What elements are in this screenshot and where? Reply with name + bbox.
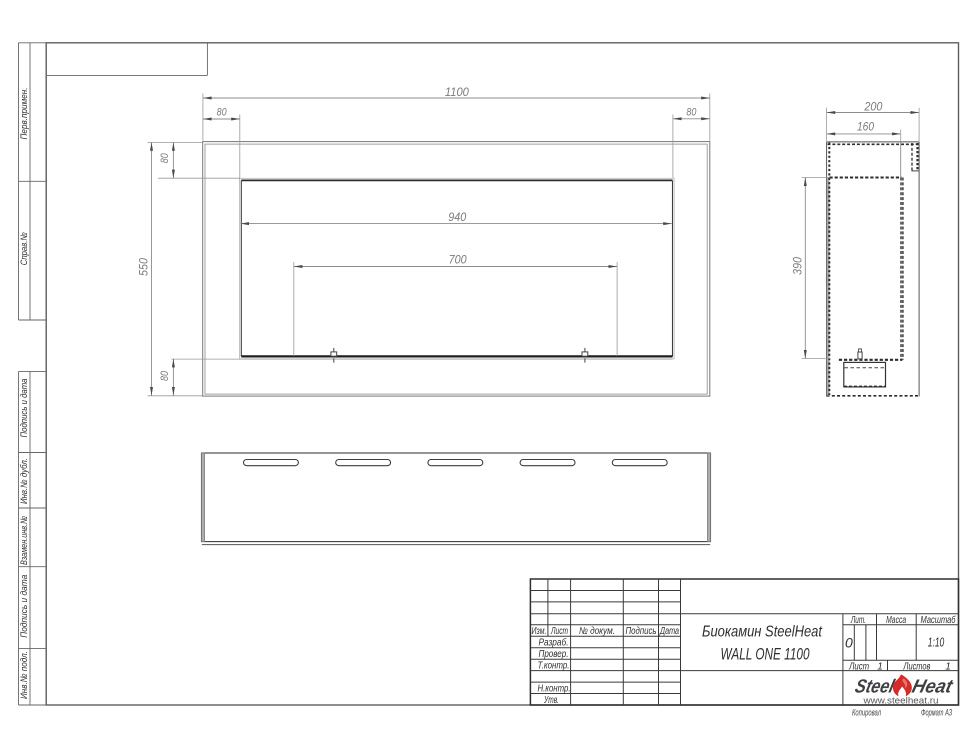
svg-text:Биокамин SteelHeat: Биокамин SteelHeat	[702, 623, 822, 640]
svg-text:Утв.: Утв.	[543, 695, 559, 706]
svg-text:Подпись: Подпись	[626, 626, 657, 637]
svg-text:www.steelheat.ru: www.steelheat.ru	[862, 695, 938, 705]
svg-text:Инв.№ дубл.: Инв.№ дубл.	[19, 458, 30, 504]
svg-text:Формат А3: Формат А3	[921, 708, 952, 718]
svg-text:Разраб.: Разраб.	[539, 637, 569, 649]
svg-text:Листов: Листов	[903, 662, 931, 673]
svg-text:Изм.: Изм.	[532, 626, 547, 637]
svg-text:80: 80	[217, 106, 228, 118]
svg-text:0: 0	[845, 635, 853, 651]
svg-text:1100: 1100	[445, 85, 469, 99]
svg-text:1: 1	[877, 662, 883, 673]
svg-text:700: 700	[449, 253, 467, 267]
svg-text:80: 80	[159, 152, 171, 163]
svg-text:Н.контр.: Н.контр.	[538, 683, 571, 694]
svg-text:Дата: Дата	[659, 626, 679, 637]
svg-text:550: 550	[137, 258, 151, 276]
svg-text:Лист: Лист	[550, 626, 568, 637]
svg-text:940: 940	[448, 210, 466, 224]
svg-text:Копировал: Копировал	[852, 708, 881, 718]
svg-text:Т.контр.: Т.контр.	[538, 660, 570, 671]
svg-text:160: 160	[857, 120, 874, 134]
svg-text:Перв.примен.: Перв.примен.	[19, 88, 30, 140]
svg-text:80: 80	[686, 106, 697, 118]
svg-text:Лист: Лист	[848, 662, 869, 673]
svg-text:Провер.: Провер.	[539, 649, 569, 660]
svg-text:80: 80	[159, 370, 171, 381]
svg-text:Справ.№: Справ.№	[19, 232, 30, 265]
svg-text:Масштаб: Масштаб	[921, 614, 956, 626]
svg-text:390: 390	[791, 257, 805, 275]
svg-text:Лит.: Лит.	[850, 615, 866, 626]
svg-text:Инв.№ подл.: Инв.№ подл.	[19, 651, 30, 699]
svg-text:WALL ONE 1100: WALL ONE 1100	[721, 644, 810, 663]
svg-text:1:10: 1:10	[928, 635, 945, 650]
svg-text:Взамен.инв.№: Взамен.инв.№	[19, 516, 30, 565]
svg-text:200: 200	[864, 100, 883, 114]
svg-text:Подпись и дата: Подпись и дата	[19, 575, 30, 638]
svg-text:№ докум.: № докум.	[579, 626, 615, 637]
svg-text:1: 1	[945, 662, 951, 673]
svg-text:Масса: Масса	[886, 615, 906, 626]
svg-text:Подпись и дата: Подпись и дата	[19, 379, 30, 438]
